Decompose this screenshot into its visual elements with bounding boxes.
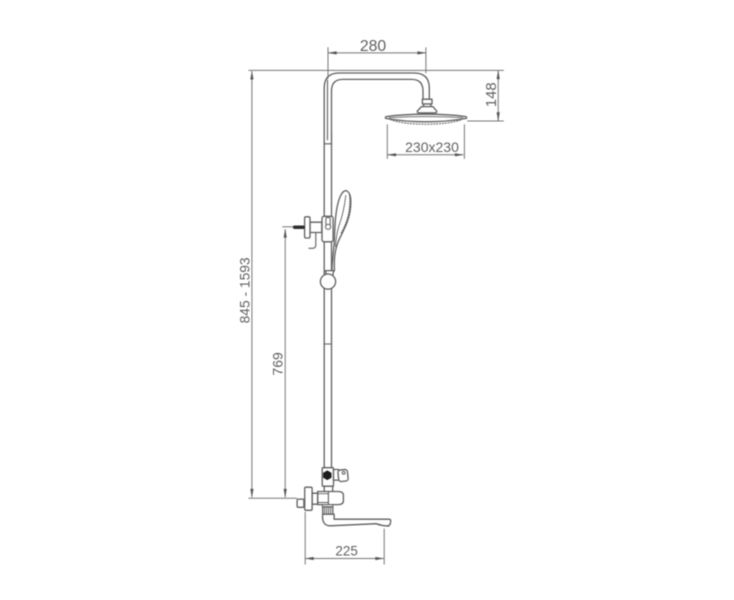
- svg-text:148: 148: [484, 82, 500, 107]
- svg-text:280: 280: [360, 38, 387, 55]
- svg-text:230x230: 230x230: [405, 139, 459, 155]
- svg-text:769: 769: [270, 352, 286, 376]
- svg-text:845 - 1593: 845 - 1593: [238, 257, 253, 323]
- svg-text:225: 225: [335, 543, 357, 558]
